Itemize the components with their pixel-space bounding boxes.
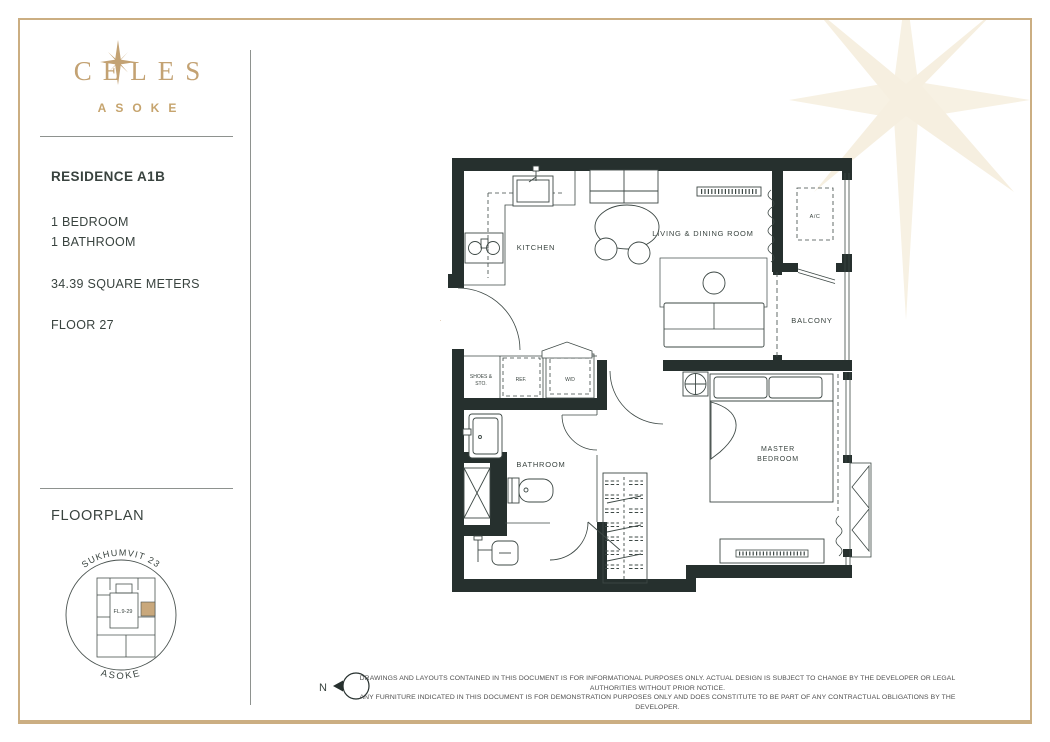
logo-divider [40,136,233,137]
north-label: N [319,682,327,694]
curtain-squiggle-bedroom [836,516,842,556]
refrigerator-label: REF. [516,377,527,383]
sidebar-divider [250,50,251,705]
bedroom-door-arc [610,371,663,424]
kitchen-label: KITCHEN [517,243,556,252]
living-tv-console [697,187,761,196]
section-divider [40,488,233,489]
kitchen-sink [513,166,553,206]
keyplan-street-bottom: ASOKE [100,668,143,682]
brochure-page: CELES ASOKE RESIDENCE A1B 1 BEDROOM 1 BA… [0,0,1050,742]
disclaimer-line-2: ANY FURNITURE INDICATED IN THIS DOCUMENT… [345,693,970,712]
dining-table [595,205,659,264]
floorplan-heading: FLOORPLAN [51,508,144,524]
residence-title: RESIDENCE A1B [51,169,165,184]
bathroom-count: 1 BATHROOM [51,235,136,249]
floorplan-drawing: KITCHEN LIVING & DINING ROOM A/C [440,150,890,610]
bedroom-tv-console [720,539,824,563]
washbasin [463,414,502,458]
unit-floor: FLOOR 27 [51,318,114,332]
bedroom-count: 1 BEDROOM [51,215,129,229]
keyplan-street-top: SUKHUMVIT 23 [80,548,163,570]
toilet [508,478,553,503]
bedside-fan-table [683,372,708,396]
keyplan-diagram: SUKHUMVIT 23 ASOKE FL.9-29 [50,535,195,700]
unit-area: 34.39 SQUARE METERS [51,277,200,291]
balcony-label: BALCONY [791,316,832,325]
keyplan-circle [66,560,176,670]
ac-label: A/C [810,214,821,220]
bedroom-window-wall [838,372,871,565]
washer-dryer-label: W/D [565,377,575,383]
service-shaft [464,468,490,518]
bathroom-label: BATHROOM [516,460,565,469]
disclaimer: DRAWINGS AND LAYOUTS CONTAINED IN THIS D… [345,674,970,712]
sofa-set [660,258,767,347]
entrance-arrow-icon [440,309,441,332]
disclaimer-line-1: DRAWINGS AND LAYOUTS CONTAINED IN THIS D… [345,674,970,693]
storage-row [464,342,597,398]
master-bedroom-label-2: BEDROOM [757,456,799,463]
living-cabinet [590,170,658,203]
entrance-door-arc [458,288,520,350]
kitchen-stove [465,233,503,263]
living-label: LIVING & DINING ROOM [652,229,753,238]
bed [710,374,833,502]
keyplan-floors-label: FL.9-29 [114,609,133,615]
master-bedroom-label-1: MASTER [761,446,795,453]
wardrobe [603,473,647,583]
shoes-storage-label-2: STO. [475,381,487,387]
brand-logo-subtitle: ASOKE [40,101,234,115]
keyplan-building-footprint [97,578,155,657]
brand-logo: CELES [40,56,234,87]
shoes-storage-label-1: SHOES & [470,374,493,380]
keyplan-unit-highlight [141,602,155,616]
